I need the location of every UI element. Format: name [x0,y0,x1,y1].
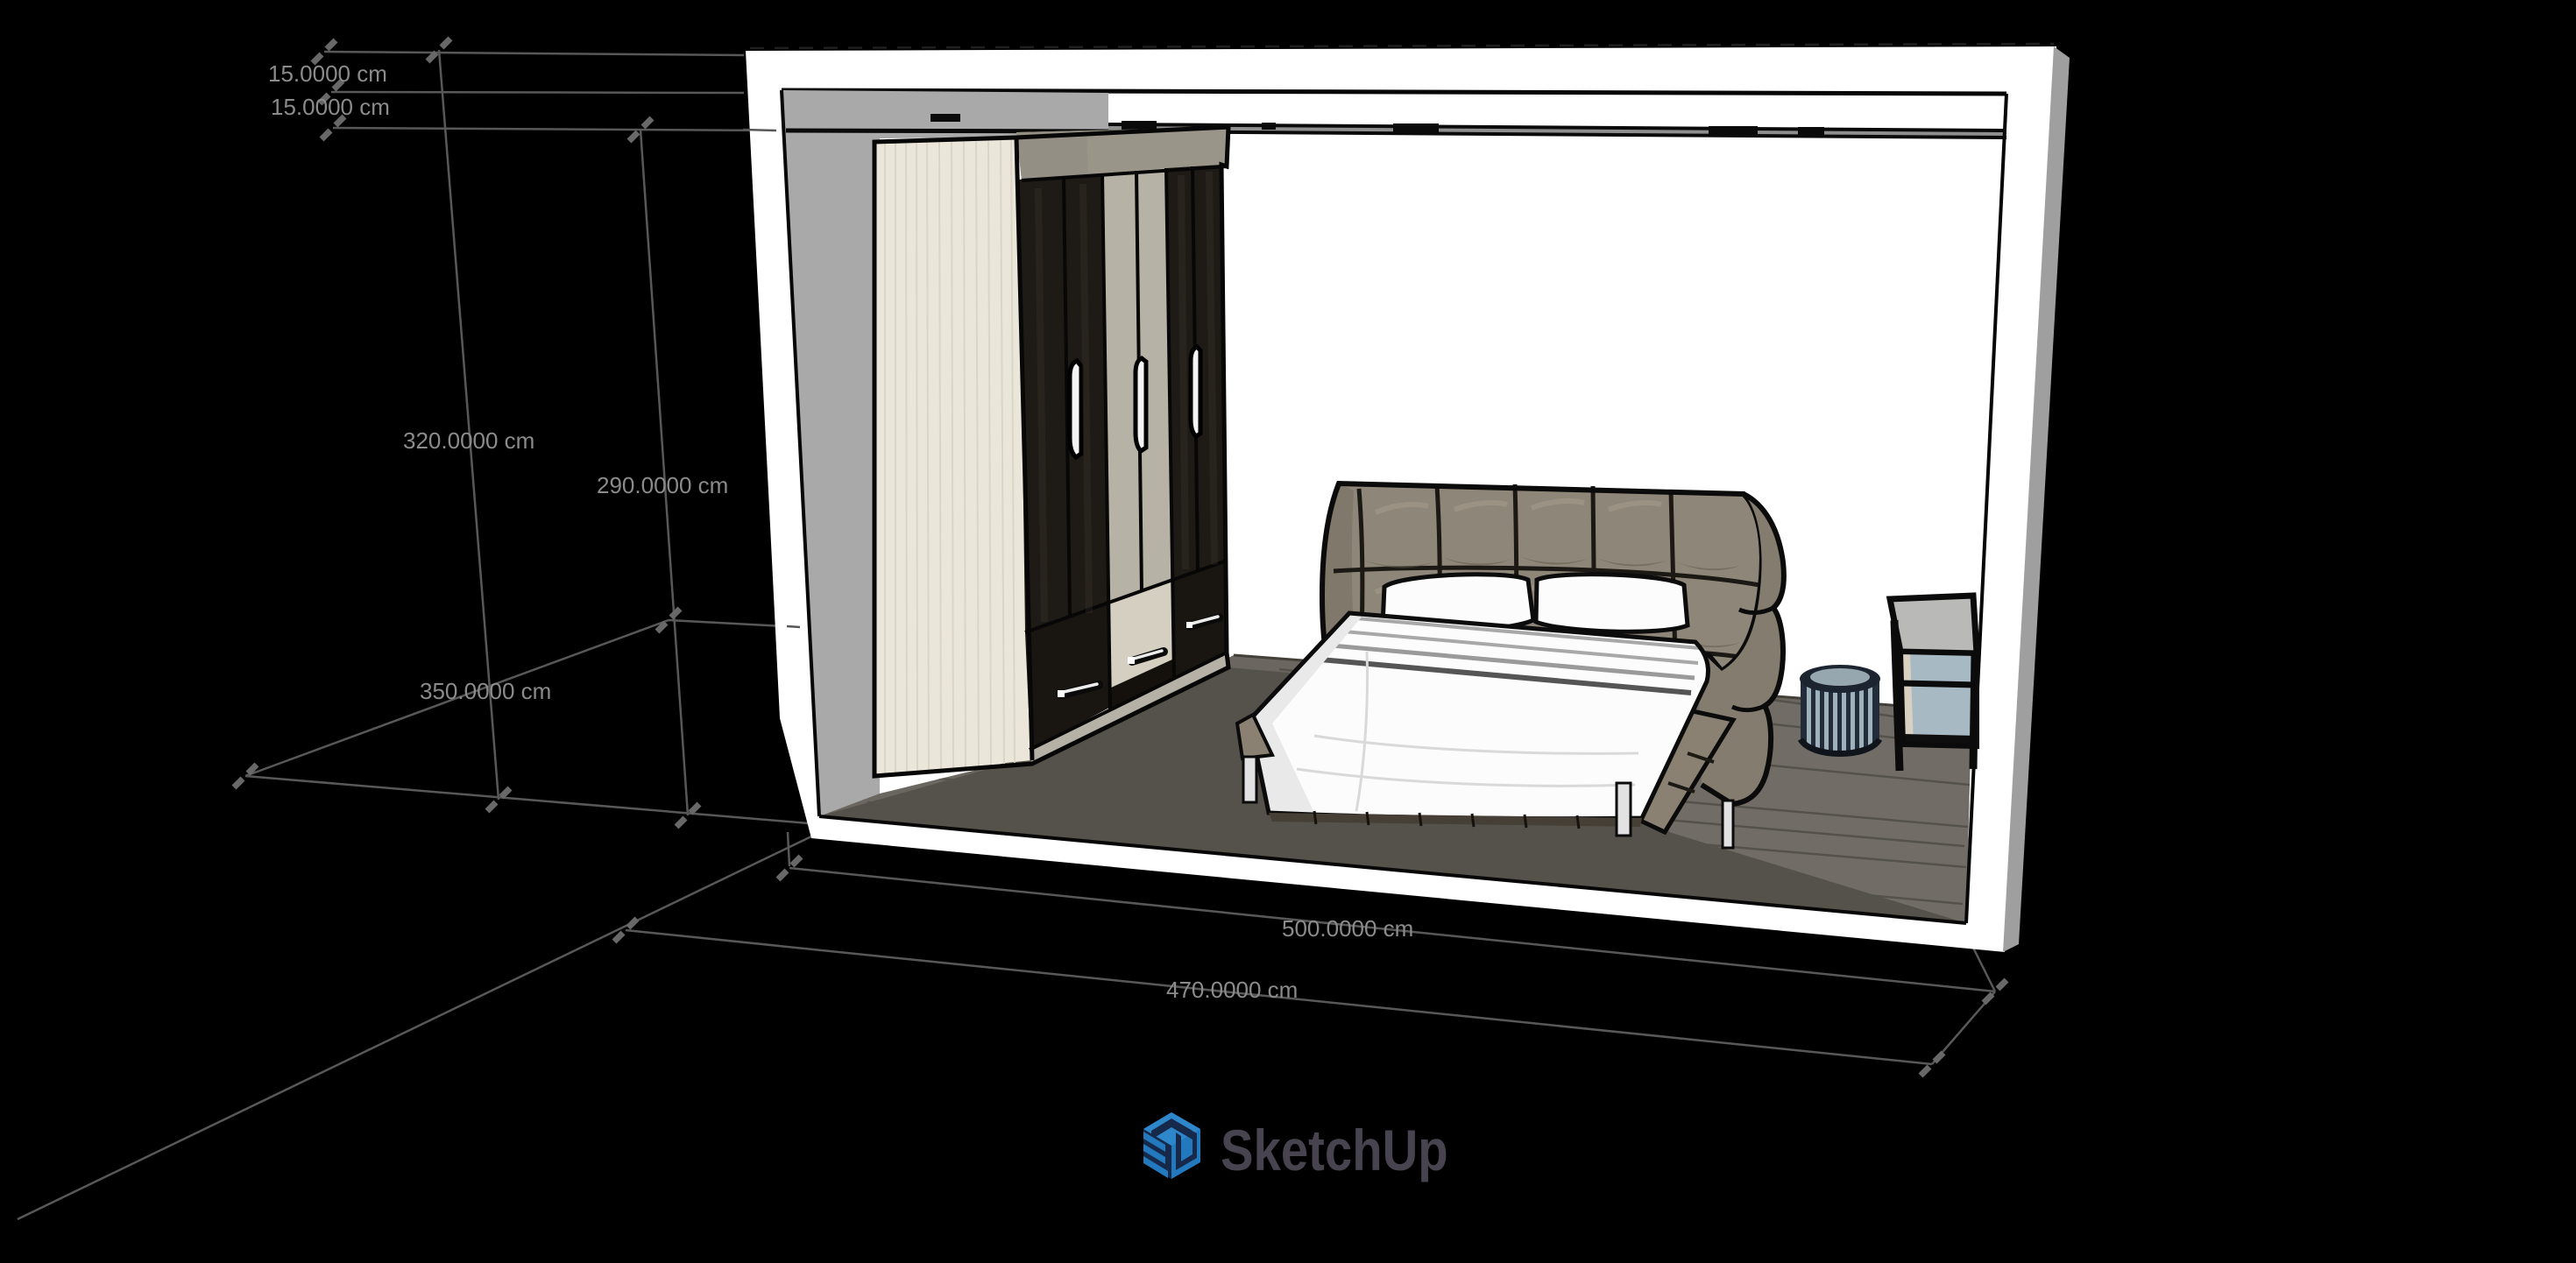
svg-text:15.0000 cm: 15.0000 cm [268,60,387,87]
svg-text:470.0000 cm: 470.0000 cm [1166,977,1298,1003]
svg-text:350.0000 cm: 350.0000 cm [420,678,551,704]
svg-text:320.0000 cm: 320.0000 cm [403,427,534,454]
svg-text:500.0000 cm: 500.0000 cm [1282,915,1413,942]
svg-text:290.0000 cm: 290.0000 cm [597,472,728,498]
svg-text:15.0000 cm: 15.0000 cm [271,94,390,120]
svg-text:SketchUp: SketchUp [1221,1118,1448,1182]
